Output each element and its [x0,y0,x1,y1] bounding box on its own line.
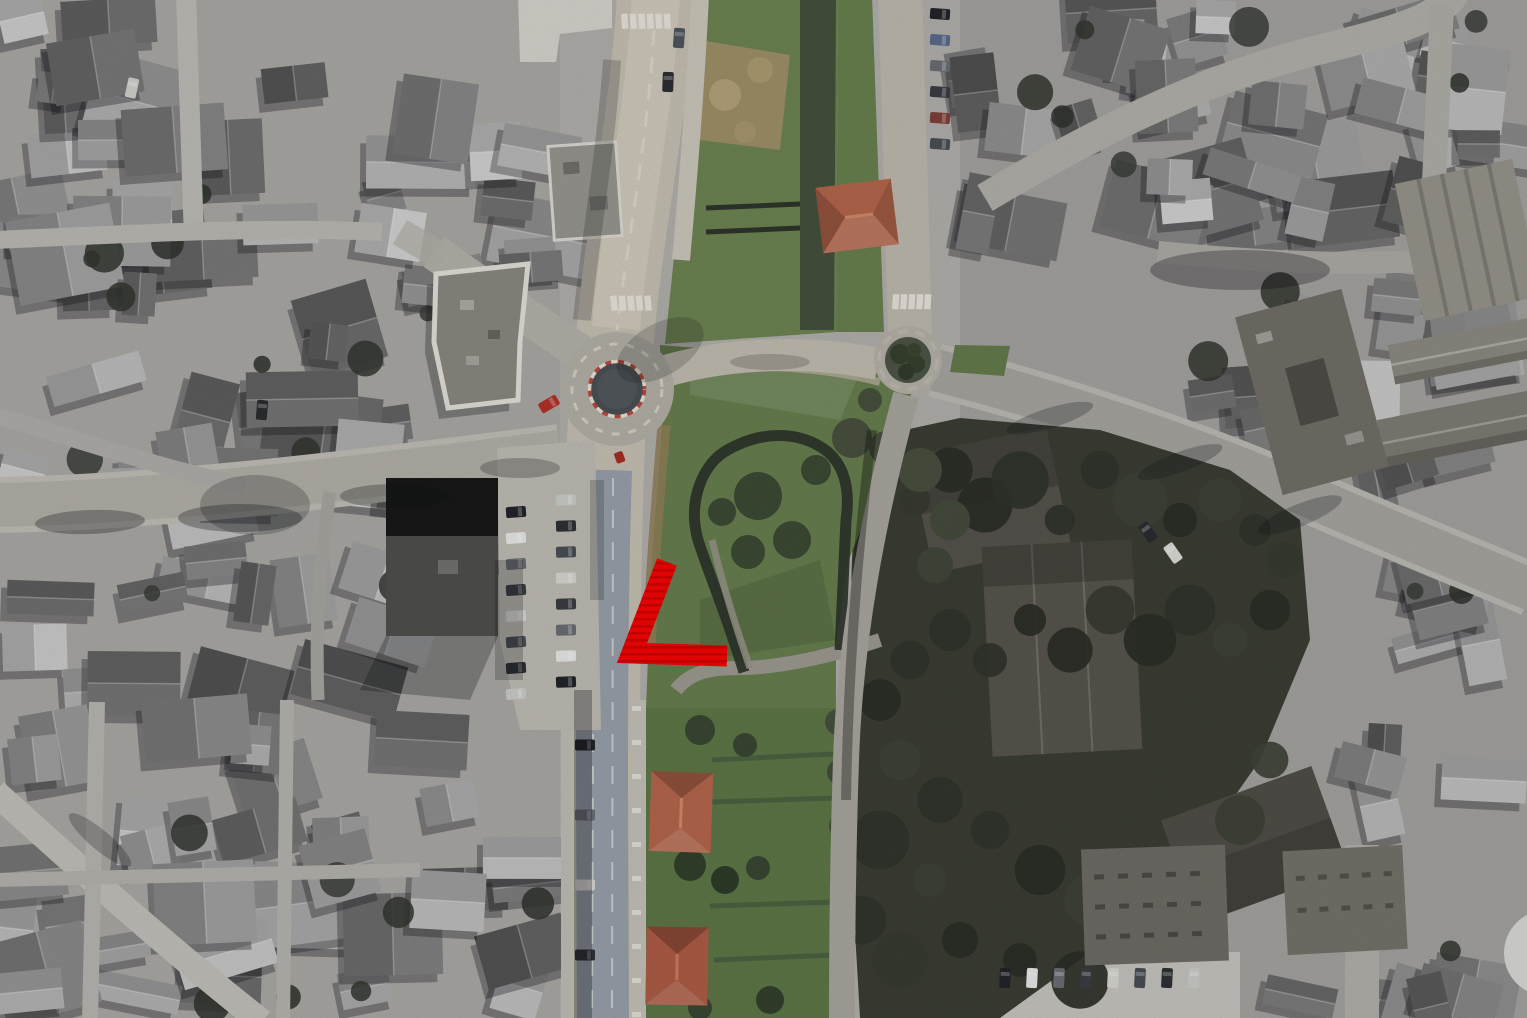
aerial-imagery [0,0,1527,1018]
grain-overlay [0,0,1527,1018]
satellite-map-view[interactable] [0,0,1527,1018]
